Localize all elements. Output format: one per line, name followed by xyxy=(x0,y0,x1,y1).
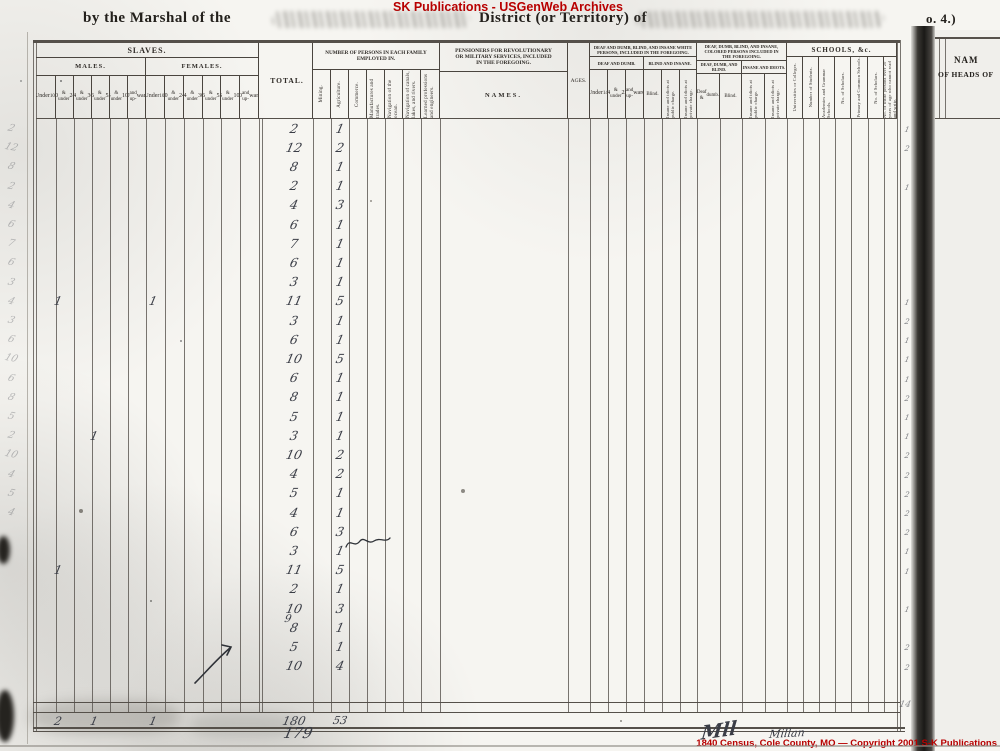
column-line xyxy=(128,118,129,712)
schools-col-header: Academies and Grammar Schools. xyxy=(819,57,835,118)
row-agriculture-value: 1 xyxy=(322,217,357,233)
slaves-females-title: FEMALES. xyxy=(146,58,259,76)
column-line xyxy=(662,118,663,712)
table-left-border xyxy=(33,40,34,731)
male-age-col-header: 55& under100. xyxy=(110,76,128,118)
row-total-value: 12 xyxy=(270,140,317,156)
white-dd-age-col-header: 25and up-wards. xyxy=(626,70,644,118)
row-male-slaves-24-36-value: 1 xyxy=(80,428,107,444)
row-total-value: 10 xyxy=(270,447,317,463)
row-agriculture-value: 1 xyxy=(322,313,357,329)
white-blind-col-header: Blind. xyxy=(644,70,662,118)
row-total-value: 8 xyxy=(270,620,317,636)
margin-bleedthrough-digit: 6 xyxy=(0,216,24,235)
census-table: SLAVES.MALES.FEMALES.Under10.Under10.10&… xyxy=(0,0,1000,751)
column-line xyxy=(240,118,241,712)
row-agriculture-value: 1 xyxy=(322,639,357,655)
white-insane-col-header: Insane and idiots at public charge. xyxy=(662,70,680,118)
row-total-value: 8 xyxy=(270,159,317,175)
margin-bleedthrough-digit: 4 xyxy=(0,196,24,215)
census-scan-page: SK Publications - USGenWeb Archives by t… xyxy=(0,0,1000,751)
female-age-col-header: 24& under36. xyxy=(184,76,203,118)
row-male-slaves-10-24-value: 1 xyxy=(44,293,71,309)
pen-mark-slash xyxy=(192,642,238,686)
column-line xyxy=(440,118,441,712)
row-agriculture-value: 4 xyxy=(322,658,357,674)
pre-total-rule xyxy=(33,702,900,703)
colored-blind-col-header: Blind. xyxy=(720,74,742,118)
female-age-col-header: 36& under55. xyxy=(203,76,221,118)
adjacent-page-strip xyxy=(935,30,1000,746)
colored-insane-col-header: Insane and idiots at public charge. xyxy=(742,74,765,118)
employed-col-header: Commerce. xyxy=(349,70,367,118)
column-line xyxy=(626,118,627,712)
white-dd-age-col-header: Under14. xyxy=(590,70,608,118)
colored-deaf-dumb-blind-subtitle: DEAF, DUMB, AND BLIND. xyxy=(697,61,742,74)
row-total-value: 5 xyxy=(270,485,317,501)
ages-col-header: AGES. xyxy=(568,43,590,118)
row-male-slaves-10-24-value: 1 xyxy=(44,562,71,578)
margin-bleedthrough-digit: 2 xyxy=(0,427,24,446)
colored-dd-group-title: DEAF, DUMB, BLIND, AND INSANE, COLORED P… xyxy=(697,43,787,61)
schools-col-header: No. of Scholars. xyxy=(868,57,884,118)
row-total-value: 4 xyxy=(270,505,317,521)
row-agriculture-value: 1 xyxy=(322,332,357,348)
column-line xyxy=(184,118,185,712)
row-agriculture-value: 1 xyxy=(322,236,357,252)
column-line xyxy=(74,118,75,712)
row-agriculture-value: 3 xyxy=(322,601,357,617)
row-agriculture-value: 1 xyxy=(322,485,357,501)
row-agriculture-value: 1 xyxy=(322,274,357,290)
schools-col-header: No. of Scholars. xyxy=(835,57,851,118)
margin-bleedthrough-digit: 4 xyxy=(0,292,24,311)
row-agriculture-value: 1 xyxy=(322,389,357,405)
margin-bleedthrough-digit: 2 xyxy=(0,120,24,139)
employed-col-header: Learned professions and engineers. xyxy=(421,70,440,118)
column-line xyxy=(221,118,222,712)
column-line xyxy=(165,118,166,712)
margin-bleedthrough-digit: 7 xyxy=(0,235,24,254)
slaves-title: SLAVES. xyxy=(36,43,259,58)
margin-bleedthrough-digit: 6 xyxy=(0,254,24,273)
margin-bleedthrough-digit: 2 xyxy=(0,177,24,196)
row-total-value: 3 xyxy=(270,274,317,290)
column-line xyxy=(385,118,386,712)
row-total-value: 11 xyxy=(270,293,317,309)
adjacent-names-header-1: NAM xyxy=(954,55,979,65)
row-agriculture-value: 1 xyxy=(322,505,357,521)
row-agriculture-value: 2 xyxy=(322,140,357,156)
column-line xyxy=(819,118,820,712)
column-line xyxy=(92,118,93,712)
schools-group-title: SCHOOLS, &c. xyxy=(787,43,897,57)
male-age-col-header: 36& under55. xyxy=(92,76,110,118)
column-line xyxy=(720,118,721,712)
employed-col-header: Manufactures and trades. xyxy=(367,70,385,118)
row-total-value: 5 xyxy=(270,409,317,425)
row-agriculture-value: 2 xyxy=(322,447,357,463)
column-line xyxy=(787,118,788,712)
row-total-value: 6 xyxy=(270,217,317,233)
column-line xyxy=(680,118,681,712)
white-dd-age-col-header: 14& under25. xyxy=(608,70,626,118)
colored-insane-subtitle: INSANE AND IDIOTS. xyxy=(742,61,787,74)
margin-bleedthrough-digit: 6 xyxy=(0,331,24,350)
column-line xyxy=(146,118,147,712)
employed-col-header: Navigation of the ocean. xyxy=(385,70,403,118)
white-blind-insane-subtitle: BLIND AND INSANE. xyxy=(644,57,697,70)
row-agriculture-value: 1 xyxy=(322,178,357,194)
row-agriculture-value: 1 xyxy=(322,255,357,271)
row-total-value: 7 xyxy=(270,236,317,252)
total-female-slaves-under-10: 1 xyxy=(138,713,167,729)
column-line xyxy=(203,118,204,712)
row-agriculture-value: 5 xyxy=(322,293,357,309)
row-total-value: 5 xyxy=(270,639,317,655)
row-total-value: 3 xyxy=(270,313,317,329)
row-total-value: 4 xyxy=(270,197,317,213)
total-col-header: TOTAL. xyxy=(262,43,313,118)
page-bottom-edge xyxy=(0,745,1000,747)
margin-bleedthrough-digit: 10 xyxy=(0,446,24,465)
row-total-value: 3 xyxy=(270,428,317,444)
male-age-col-header: 24& under36. xyxy=(74,76,92,118)
row-total-value: 10 xyxy=(270,351,317,367)
row-total-value: 2 xyxy=(270,178,317,194)
schools-col-header: Number of Students. xyxy=(803,57,819,118)
colored-deaf-dumb-col-header: Deaf &dumb. xyxy=(697,74,720,118)
row-total-value: 3 xyxy=(270,543,317,559)
page-number: 179 xyxy=(276,724,320,742)
total-male-slaves-10-24: 2 xyxy=(44,713,71,729)
row-agriculture-value: 1 xyxy=(322,121,357,137)
slaves-males-title: MALES. xyxy=(36,58,146,76)
row-agriculture-value: 5 xyxy=(322,562,357,578)
row-agriculture-value: 5 xyxy=(322,351,357,367)
column-line xyxy=(868,118,869,712)
margin-bleedthrough-digit: 10 xyxy=(0,350,24,369)
margin-bleedthrough-digit: 5 xyxy=(0,408,24,427)
row-total-value: 8 xyxy=(270,389,317,405)
schools-col-header: Universities or Colleges. xyxy=(787,57,803,118)
column-line xyxy=(851,118,852,712)
margin-bleedthrough-digit: 8 xyxy=(0,388,24,407)
female-age-col-header: 10& under24. xyxy=(165,76,184,118)
column-line xyxy=(590,118,591,712)
column-line xyxy=(403,118,404,712)
schools-col-header: Primary and Common Schools. xyxy=(851,57,868,118)
white-insane-col-header: Insane and idiots at private charge. xyxy=(680,70,697,118)
row-total-value: 4 xyxy=(270,466,317,482)
row-agriculture-value: 1 xyxy=(322,581,357,597)
row-agriculture-value: 1 xyxy=(322,370,357,386)
pen-mark-flourish xyxy=(344,533,392,553)
row-total-value: 2 xyxy=(270,581,317,597)
table-left-border xyxy=(36,43,37,731)
column-line xyxy=(110,118,111,712)
row-total-value: 2 xyxy=(270,121,317,137)
column-line xyxy=(884,118,885,712)
male-age-col-header: 100and up-wards. xyxy=(128,76,146,118)
column-line xyxy=(765,118,766,712)
pensioners-names-header: NAMES. xyxy=(440,72,568,118)
row-total-value: 11 xyxy=(270,562,317,578)
binding-gutter-shadow xyxy=(911,26,935,751)
employed-col-header: Mining. xyxy=(313,70,331,118)
row-agriculture-value: 1 xyxy=(322,409,357,425)
female-age-col-header: 100and up-wards. xyxy=(240,76,259,118)
schools-col-header: No. of white persons over 20 years of ag… xyxy=(884,57,897,118)
row-total-value: 6 xyxy=(270,370,317,386)
column-line xyxy=(742,118,743,712)
column-line xyxy=(697,118,698,712)
employed-col-header: Navigation of canals, lakes, and rivers. xyxy=(403,70,421,118)
margin-bleedthrough-digit: 4 xyxy=(0,465,24,484)
column-line xyxy=(56,118,57,712)
row-agriculture-value: 2 xyxy=(322,466,357,482)
total-male-slaves-24-36: 1 xyxy=(80,713,107,729)
row-agriculture-value: 1 xyxy=(322,620,357,636)
adjacent-page-line xyxy=(935,118,1000,119)
margin-bleedthrough-digit: 6 xyxy=(0,369,24,388)
column-line xyxy=(421,118,422,712)
white-dd-group-title: DEAF AND DUMB, BLIND, AND INSANE WHITE P… xyxy=(590,43,697,57)
column-line xyxy=(835,118,836,712)
column-line xyxy=(568,118,569,712)
male-age-col-header: 10& under24. xyxy=(56,76,74,118)
row-agriculture-value: 1 xyxy=(322,428,357,444)
column-line xyxy=(608,118,609,712)
row-total-value: 6 xyxy=(270,332,317,348)
row-female-slaves-under-10-value: 1 xyxy=(138,293,167,309)
total-agriculture-value: 53 xyxy=(322,713,357,729)
female-age-col-header: 55& under100. xyxy=(221,76,240,118)
employed-group-title: NUMBER OF PERSONS IN EACH FAMILY EMPLOYE… xyxy=(313,43,440,70)
column-line xyxy=(644,118,645,712)
column-line xyxy=(367,118,368,712)
row-agriculture-value: 1 xyxy=(322,159,357,175)
margin-bleedthrough-digit: 5 xyxy=(0,484,24,503)
female-age-col-header: Under10. xyxy=(146,76,165,118)
row-total-value: 6 xyxy=(270,524,317,540)
row-agriculture-value: 3 xyxy=(322,197,357,213)
row-total-value: 6 xyxy=(270,255,317,271)
margin-bleedthrough-digit: 3 xyxy=(0,273,24,292)
male-age-col-header: Under10. xyxy=(36,76,56,118)
pensioners-group-title: PENSIONERS FOR REVOLUTIONARY OR MILITARY… xyxy=(440,43,568,72)
margin-bleedthrough-digit: 4 xyxy=(0,504,24,523)
adjacent-names-header-2: OF HEADS OF xyxy=(938,70,994,79)
employed-col-header: Agriculture. xyxy=(331,70,349,118)
white-deaf-dumb-subtitle: DEAF AND DUMB. xyxy=(590,57,644,70)
row-total-value: 10 xyxy=(270,658,317,674)
table-right-border xyxy=(897,43,898,731)
column-line xyxy=(262,118,263,712)
watermark-bottom: 1840 Census, Cole County, MO — Copyright… xyxy=(696,738,997,749)
margin-bleedthrough-digit: 3 xyxy=(0,312,24,331)
colored-insane-col-header: Insane and idiots at private charge. xyxy=(765,74,787,118)
column-line xyxy=(803,118,804,712)
margin-bleedthrough-digit: 8 xyxy=(0,158,24,177)
column-line xyxy=(259,118,260,712)
margin-bleedthrough-digit: 12 xyxy=(0,139,24,158)
